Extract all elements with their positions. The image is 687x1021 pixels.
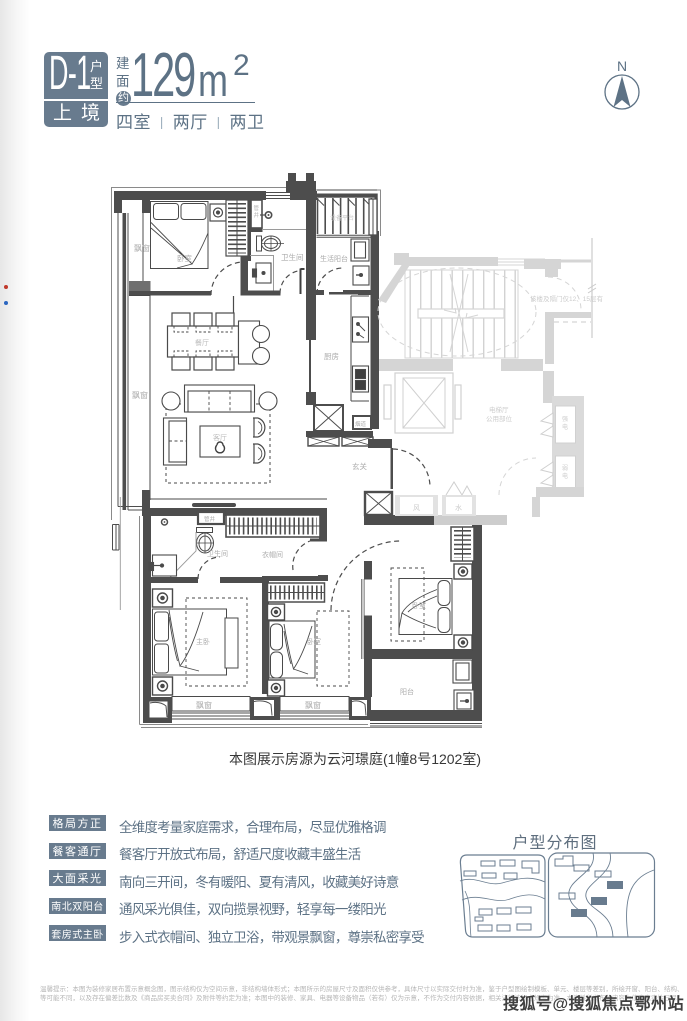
- svg-text:厨房: 厨房: [324, 351, 339, 361]
- svg-text:飘窗: 飘窗: [196, 700, 212, 710]
- svg-text:风: 风: [413, 504, 420, 512]
- svg-text:井: 井: [254, 211, 260, 219]
- svg-text:飘窗: 飘窗: [305, 700, 321, 710]
- svg-text:卧室: 卧室: [177, 253, 192, 263]
- svg-text:烟道: 烟道: [355, 420, 367, 428]
- svg-text:电: 电: [562, 472, 568, 480]
- svg-text:电梯厅: 电梯厅: [489, 405, 509, 414]
- svg-text:卫生间: 卫生间: [207, 549, 228, 558]
- svg-text:飘窗: 飘窗: [134, 243, 150, 253]
- svg-text:管: 管: [254, 204, 260, 212]
- svg-text:餐厅: 餐厅: [195, 338, 209, 347]
- svg-text:阳台: 阳台: [400, 687, 414, 696]
- svg-text:卧室: 卧室: [307, 637, 321, 646]
- svg-text:卫生间: 卫生间: [281, 252, 304, 262]
- svg-text:生活阳台: 生活阳台: [320, 254, 348, 263]
- svg-text:该楼及隔门仅12、15层有: 该楼及隔门仅12、15层有: [530, 294, 603, 303]
- svg-text:强: 强: [562, 416, 568, 423]
- svg-text:卧室: 卧室: [412, 601, 426, 610]
- svg-text:水: 水: [455, 503, 462, 512]
- svg-text:电: 电: [562, 423, 568, 431]
- svg-text:主卧: 主卧: [196, 637, 210, 646]
- svg-text:设备平台: 设备平台: [330, 214, 354, 222]
- svg-text:飘窗: 飘窗: [132, 390, 148, 400]
- svg-text:衣帽间: 衣帽间: [262, 550, 283, 559]
- svg-text:客厅: 客厅: [213, 433, 227, 442]
- svg-text:管井: 管井: [204, 515, 216, 523]
- svg-text:玄关: 玄关: [352, 461, 367, 471]
- svg-text:弱: 弱: [562, 465, 568, 472]
- svg-text:公用部位: 公用部位: [486, 414, 513, 423]
